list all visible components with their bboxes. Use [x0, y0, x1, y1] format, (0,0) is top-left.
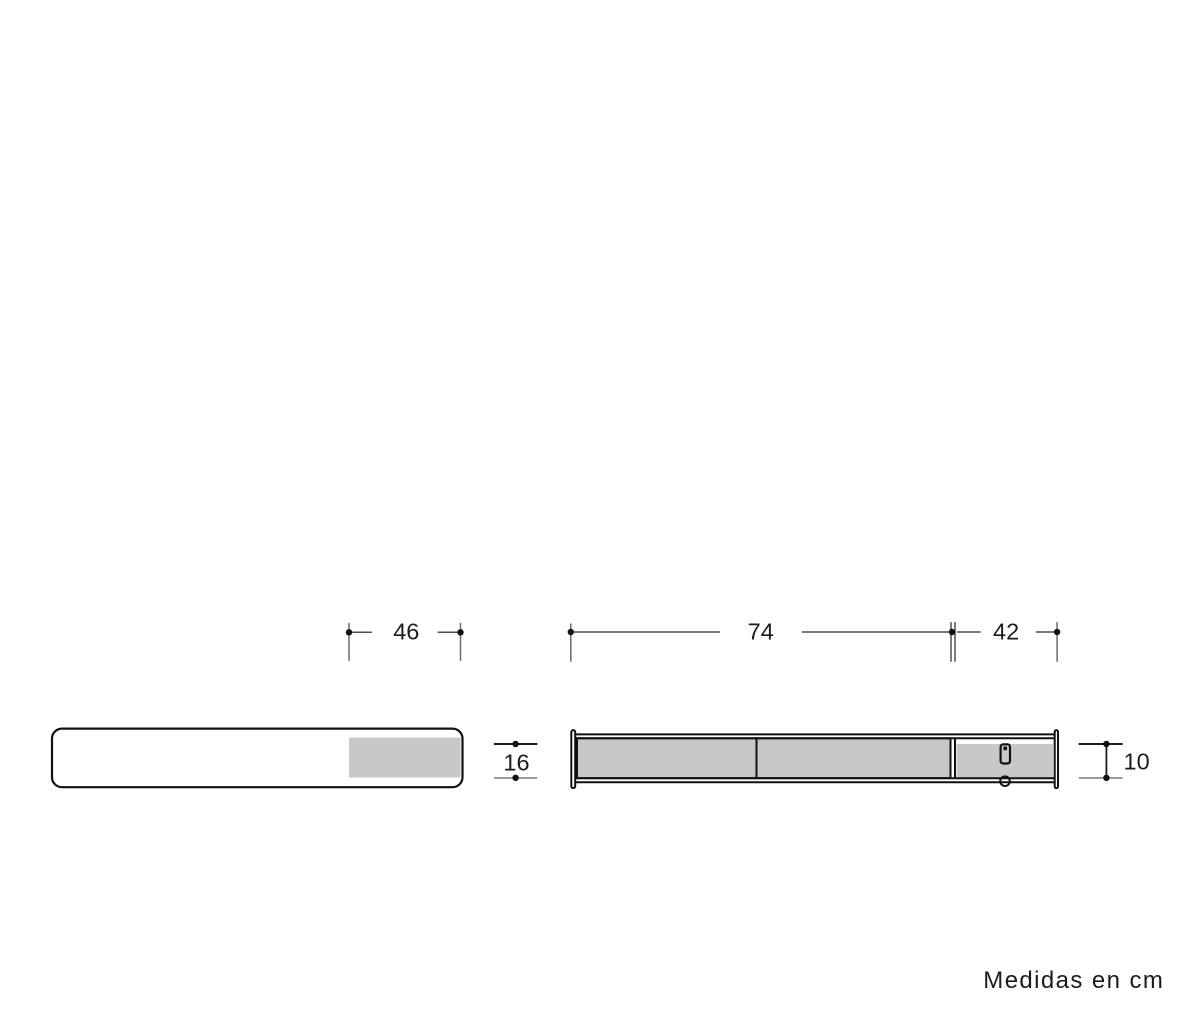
svg-text:10: 10 [1124, 749, 1150, 775]
svg-text:16: 16 [503, 749, 529, 775]
svg-text:46: 46 [393, 619, 419, 645]
svg-text:42: 42 [993, 618, 1019, 644]
svg-text:Medidas en cm: Medidas en cm [983, 967, 1164, 994]
svg-text:74: 74 [748, 618, 774, 644]
